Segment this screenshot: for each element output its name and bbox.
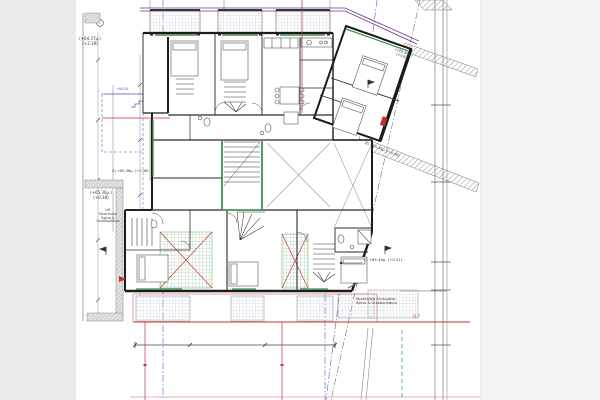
elevation-label-top-left: (+64.37μ.) (+2.39) xyxy=(74,37,106,46)
left-ownership-note: Lift Ιδιοκτησία Άρτια & Οικοδομήσιμη xyxy=(90,209,126,224)
bed xyxy=(221,41,248,80)
floor-plan-sheet: (+64.37μ.) (+2.39) (+65.36μ.) (+0.38) Ζ)… xyxy=(0,0,600,400)
bottom-ownership-note: Ιδιοκτησία Λευκωσίου Άρτια & Οικοδομήσιμ… xyxy=(356,297,397,305)
bed xyxy=(229,262,258,286)
elevation-label-c: Γ) +65.49μ. (+0.51) xyxy=(364,258,402,262)
building-line-og-label: Ο.Γ. xyxy=(413,315,421,320)
elevation-label-z: Ζ) +65.36μ. (+0.38) xyxy=(112,169,149,173)
elevation-label-left: (+65.36μ.) (+0.38) xyxy=(86,191,116,200)
wardrobe xyxy=(264,38,298,48)
bed xyxy=(137,255,168,282)
blue-level-label: +64.05 xyxy=(116,88,129,92)
bed xyxy=(171,41,198,76)
